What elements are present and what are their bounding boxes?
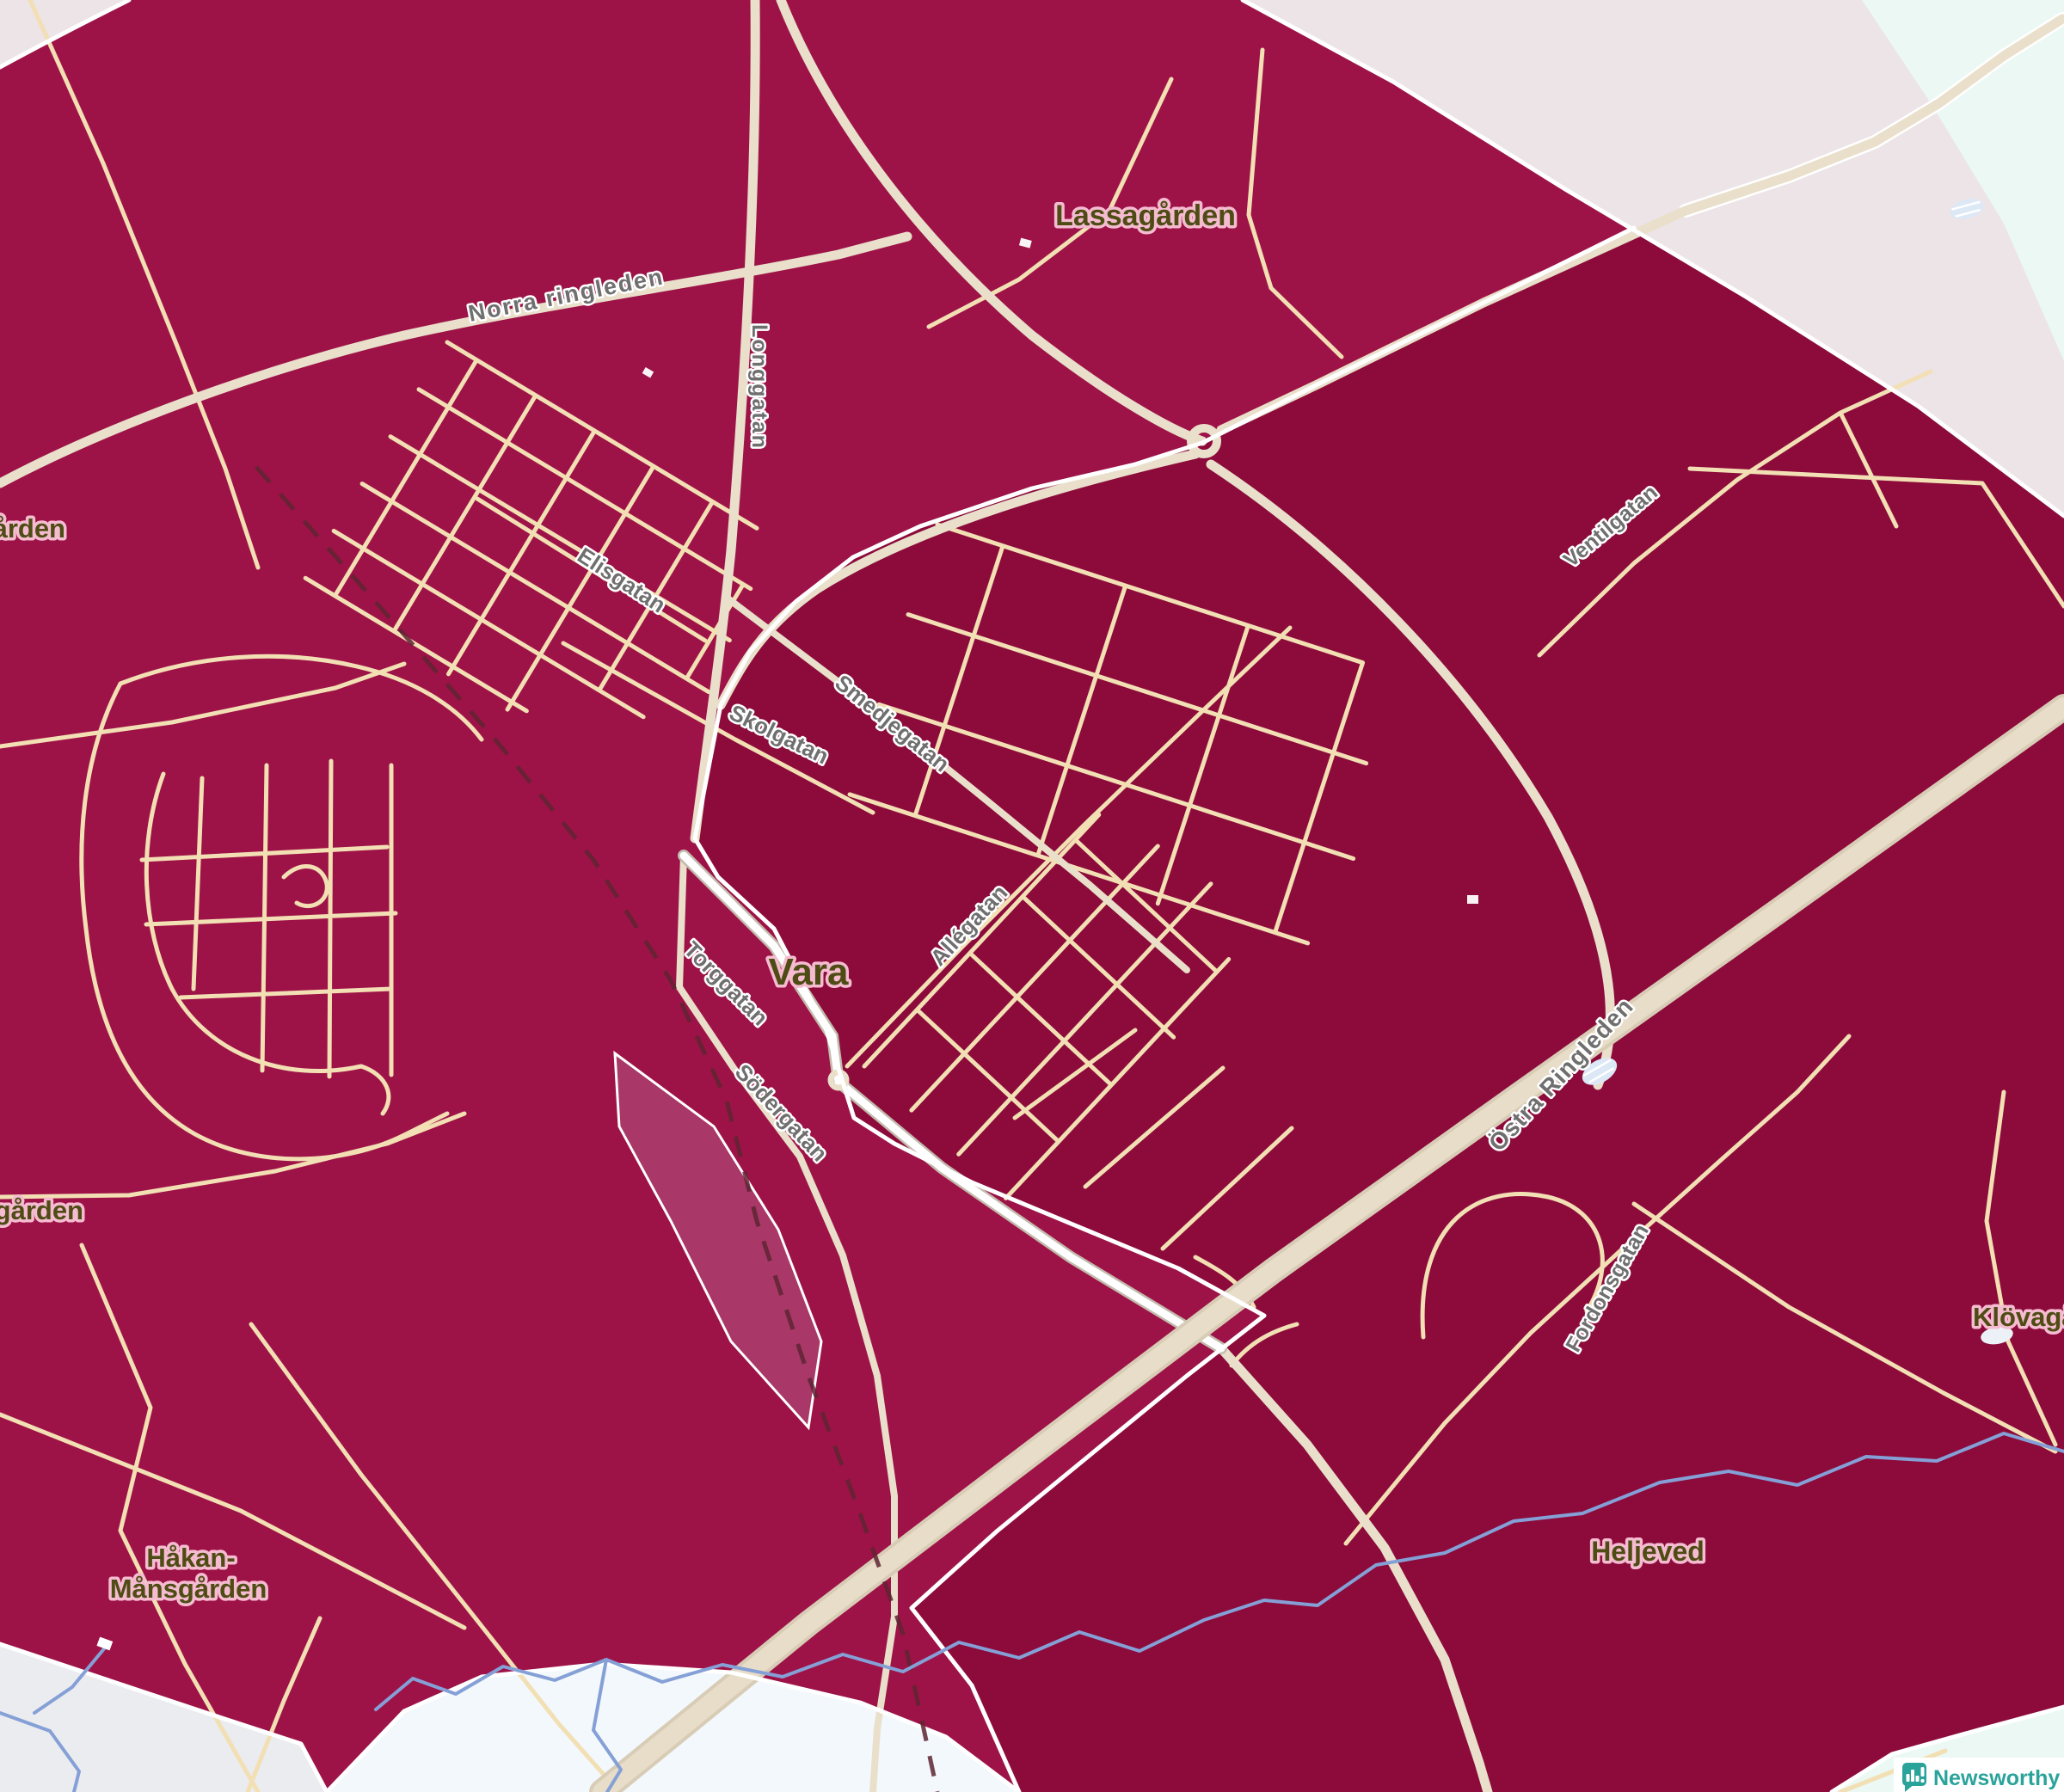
place-label-klovagarden: Klövagå — [1973, 1302, 2064, 1332]
map-canvas[interactable]: Norra ringleden Longgatan Elisgatan Skol… — [0, 0, 2064, 1792]
street-label-langgatan: Longgatan — [747, 324, 771, 450]
place-label-hakan-line1: Håkan- — [146, 1543, 235, 1573]
attribution-brand-name: Newsworthy — [1933, 1766, 2060, 1790]
place-label-garden: gården — [0, 1195, 83, 1225]
place-label-vara: Vara — [769, 951, 850, 993]
building — [1467, 895, 1478, 904]
place-label-heljeved: Heljeved — [1591, 1536, 1705, 1567]
place-label-arden: ården — [0, 513, 65, 543]
place-label-hakan-line2: Månsgården — [110, 1574, 267, 1604]
place-label-lassagarden: Lassagården — [1055, 199, 1236, 232]
newsworthy-attribution: Newsworthy — [1894, 1758, 2064, 1792]
map-viewport: Norra ringleden Longgatan Elisgatan Skol… — [0, 0, 2064, 1792]
